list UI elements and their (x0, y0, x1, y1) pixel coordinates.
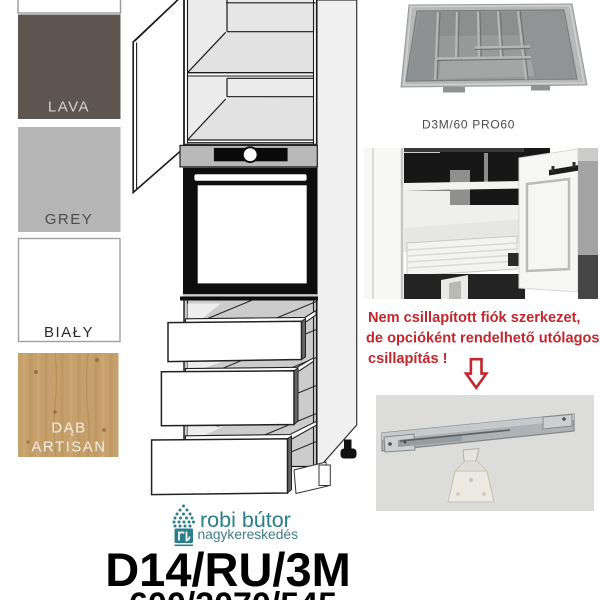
svg-text:ARTISAN: ARTISAN (31, 439, 106, 456)
svg-text:Nem csillapított fiók szerkeze: Nem csillapított fiók szerkezet, (368, 310, 581, 326)
svg-text:csillapítás !: csillapítás ! (368, 351, 448, 367)
svg-text:LAVA: LAVA (48, 99, 90, 116)
svg-text:de opcióként rendelhető utólag: de opcióként rendelhető utólagos (366, 331, 600, 347)
svg-text:BIAŁY: BIAŁY (44, 324, 94, 341)
svg-text:600/2070/545: 600/2070/545 (129, 586, 337, 600)
svg-text:GREY: GREY (45, 211, 94, 228)
svg-text:DĄB: DĄB (51, 420, 86, 437)
svg-text:D3M/60 PRO60: D3M/60 PRO60 (422, 117, 515, 131)
svg-text:nagykereskedés: nagykereskedés (198, 527, 299, 542)
